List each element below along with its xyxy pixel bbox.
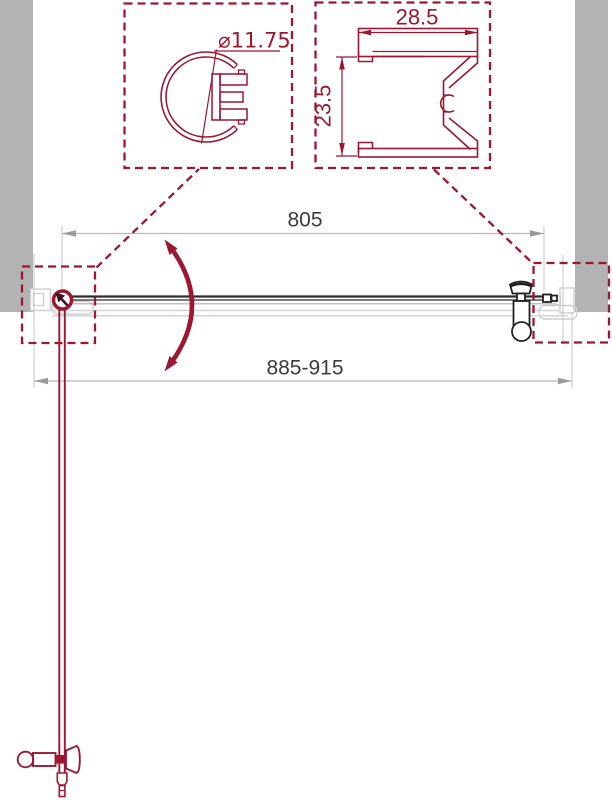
leader-line-left [97, 169, 200, 268]
wall-profile-drawing [359, 29, 478, 158]
open-door-handle [18, 746, 80, 773]
shower-door-plan-drawing: 805 885-915 [0, 0, 612, 800]
technical-drawing-page: 805 885-915 [0, 0, 612, 800]
open-door-panel [18, 309, 80, 797]
open-door-bottom-cap [57, 773, 67, 797]
profile-height-dimension: 23.5 [311, 57, 358, 156]
dim-arrow-left [62, 230, 76, 236]
detail-box-knob-profile: ⌀11.75 [125, 4, 293, 169]
bottom-door-rail-plan [52, 302, 568, 316]
profile-width-dimension: 28.5 [359, 5, 478, 36]
dim-arrow-right [530, 230, 544, 236]
right-wall [575, 0, 608, 312]
profile-width-label: 28.5 [396, 5, 439, 30]
door-width-dimension-805: 805 [62, 209, 544, 292]
dim-arrow-right [558, 378, 572, 384]
knob-ball [512, 322, 531, 341]
dim-label-885-915: 885-915 [266, 357, 343, 380]
dim-arrow-left [34, 378, 48, 384]
dim-label-805: 805 [287, 209, 322, 232]
detail-box-wall-profile: 28.5 23.5 [311, 3, 491, 169]
door-glass-panel [68, 297, 543, 301]
opening-width-dimension-885-915: 885-915 [34, 254, 572, 388]
right-wall-profile-plan [539, 288, 577, 319]
left-wall [0, 0, 33, 312]
door-handle-knob [510, 282, 532, 342]
door-swing-arc [165, 240, 193, 372]
profile-height-label: 23.5 [311, 85, 336, 128]
hinge-pivot [54, 291, 72, 309]
diameter-dimension: ⌀11.75 [202, 29, 291, 144]
diameter-label: ⌀11.75 [218, 29, 291, 53]
glass-end-fitting [543, 295, 557, 303]
leader-line-right [434, 170, 533, 264]
